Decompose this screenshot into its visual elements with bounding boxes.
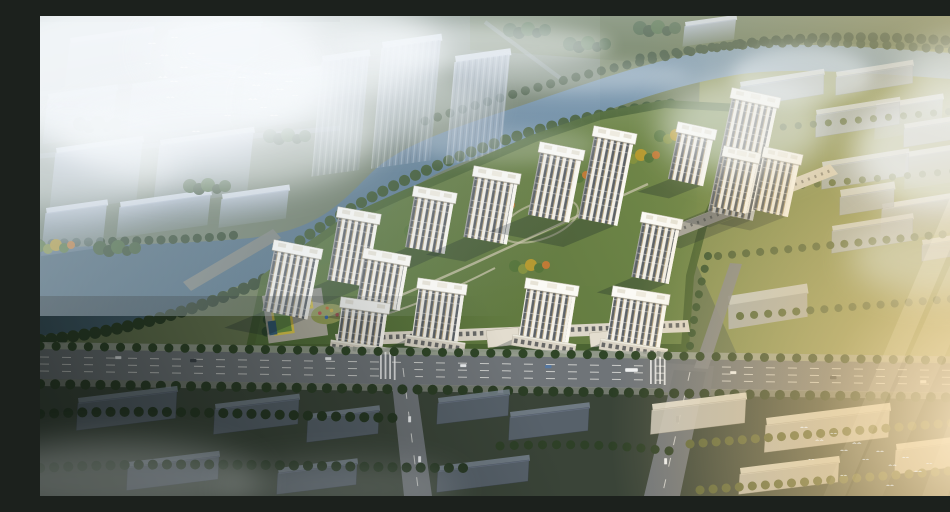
aerial-render: Aerial architectural rendering of a rive… — [40, 16, 950, 496]
atmosphere — [40, 16, 950, 496]
render-canvas — [40, 16, 950, 496]
